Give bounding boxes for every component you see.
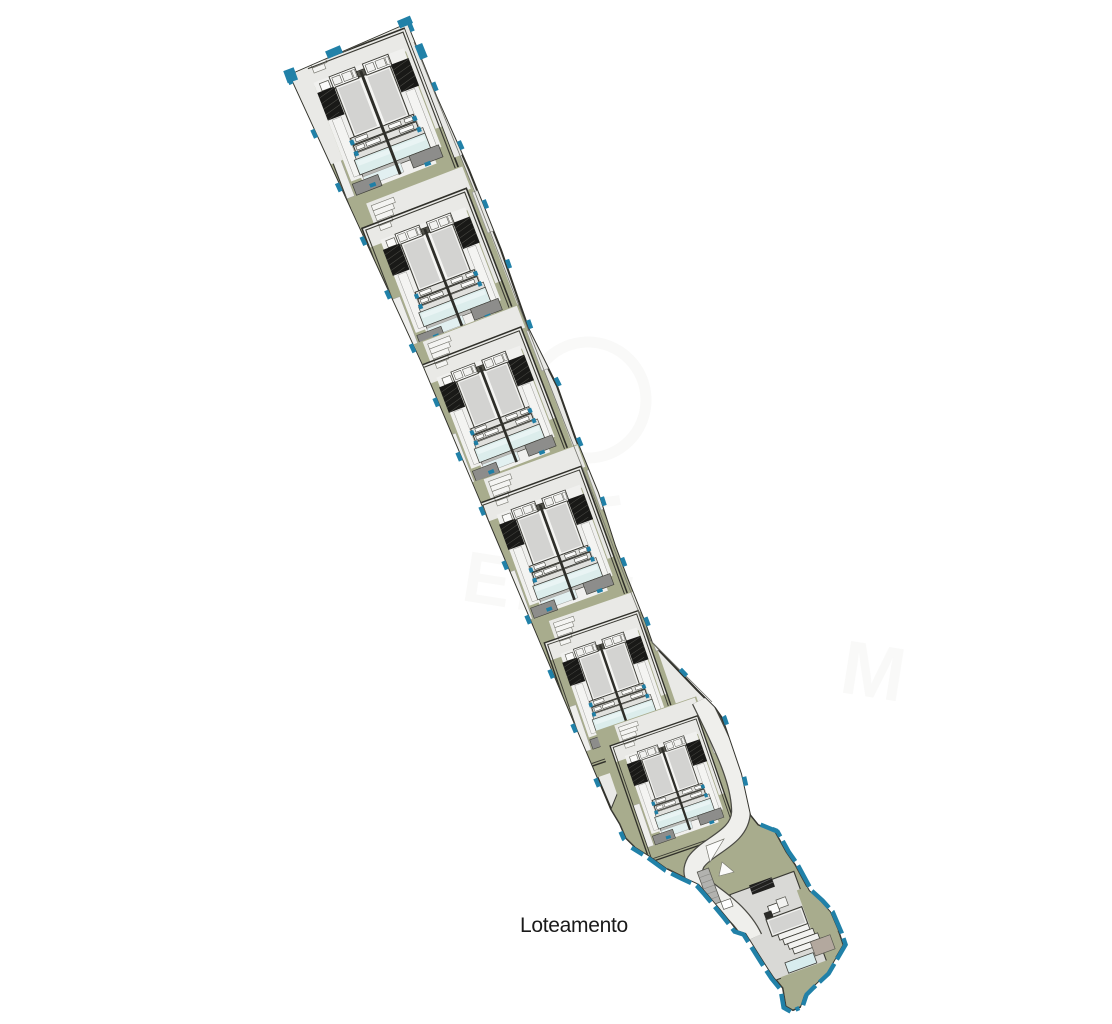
svg-text:M: M [835,625,911,719]
svg-text:Loteamento: Loteamento [520,914,628,937]
